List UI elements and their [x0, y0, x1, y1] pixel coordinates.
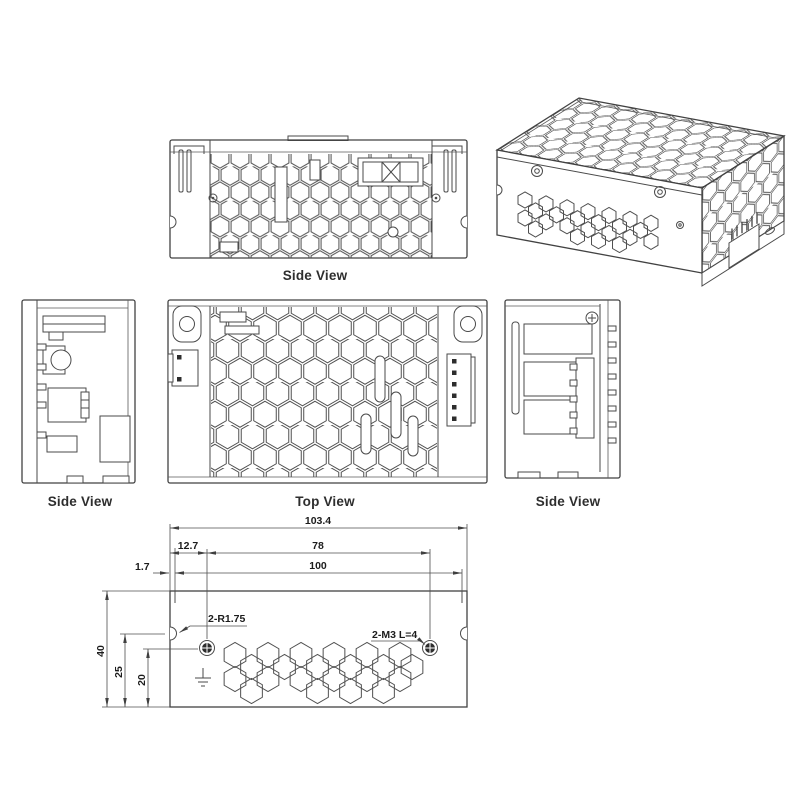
top-view-output-connector — [447, 354, 475, 426]
side-view-right-drawing — [500, 296, 625, 484]
side-right-internals — [512, 322, 594, 478]
dim-mounting-span: 100 — [309, 560, 327, 572]
dim-cover-offset: 1.7 — [135, 561, 150, 573]
side-view-right-label: Side View — [508, 494, 628, 509]
dim-hole-inset: 12.7 — [178, 540, 199, 552]
isometric-view-drawing — [485, 85, 795, 290]
side-view-top-drawing — [160, 132, 475, 267]
dim-hole-center-height: 20 — [136, 674, 148, 686]
side-top-body — [170, 136, 467, 258]
svg-text:2-M3 L=4: 2-M3 L=4 — [372, 629, 417, 641]
dim-overall-height: 40 — [95, 645, 107, 657]
top-view-label: Top View — [265, 494, 385, 509]
dim-overall-length: 103.4 — [305, 515, 331, 527]
dim-notch-center-height: 25 — [113, 666, 125, 678]
bottom-view-dimension-drawing: 103.4 12.7 78 1.7 100 40 25 20 2-R1.75 2… — [95, 508, 485, 743]
svg-text:2-R1.75: 2-R1.75 — [208, 613, 246, 625]
side-view-left-drawing — [15, 296, 145, 488]
bottom-mounting-hole-left — [200, 641, 215, 656]
top-view-body — [168, 300, 487, 483]
side-left-internals — [37, 316, 130, 483]
side-top-terminal-block — [358, 158, 423, 186]
bottom-mounting-hole-right — [423, 641, 438, 656]
dim-hole-pitch: 78 — [312, 540, 324, 552]
iso-enclosure — [497, 98, 784, 286]
drawing-canvas: Side View — [0, 0, 800, 800]
side-right-screw — [586, 312, 598, 324]
top-view-input-connector — [168, 350, 198, 386]
side-top-right-bracket — [432, 146, 467, 228]
side-view-left-label: Side View — [20, 494, 140, 509]
side-right-flange-pins — [608, 326, 616, 443]
top-view-drawing — [165, 296, 490, 488]
side-view-top-label: Side View — [255, 268, 375, 283]
